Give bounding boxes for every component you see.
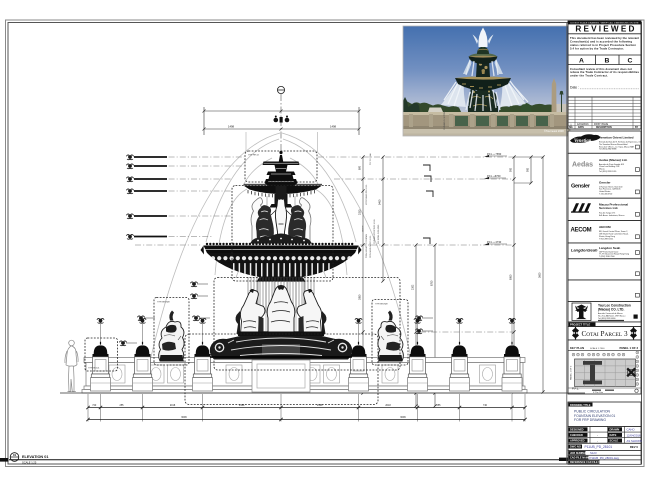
svg-text:SCALE 1:25: SCALE 1:25 [22, 461, 37, 465]
svg-text:C: C [628, 58, 633, 65]
svg-text:SCALE 1:7500: SCALE 1:7500 [590, 347, 605, 350]
svg-text:900: 900 [509, 167, 512, 172]
svg-text:ELEVATION 01: ELEVATION 01 [22, 455, 48, 459]
svg-text:8060: 8060 [509, 274, 512, 280]
svg-text:FOUNTAIN STRUCTURE LEVEL: FOUNTAIN STRUCTURE LEVEL [373, 219, 376, 244]
svg-text:(Macau) CO. LTD.: (Macau) CO. LTD. [598, 308, 624, 312]
svg-text:12/04/2016: 12/04/2016 [577, 124, 589, 126]
svg-text:12/04/2016: 12/04/2016 [627, 433, 641, 437]
svg-text:AECOM: AECOM [571, 228, 592, 234]
svg-text:Consultant(s) and is accorded: Consultant(s) and is accorded the follow… [570, 40, 632, 44]
svg-text:T (852) 2830 2500: T (852) 2830 2500 [599, 256, 615, 258]
svg-text:P.F.L + 4730: P.F.L + 4730 [487, 240, 502, 244]
svg-text:TOP OF FINIAL: TOP OF FINIAL [369, 153, 372, 165]
svg-text:900: 900 [526, 167, 529, 172]
svg-text:BY: BY [635, 127, 639, 129]
svg-text:REVIEWED: REVIEWED [575, 25, 636, 34]
svg-text:Langdon Seah: Langdon Seah [599, 246, 620, 250]
svg-text:DRAWN: DRAWN [610, 428, 620, 432]
svg-text:6096: 6096 [400, 416, 406, 419]
svg-text:Gensler: Gensler [599, 180, 611, 184]
svg-text:CHECKED: CHECKED [570, 433, 583, 437]
svg-text:900 TYP: 900 TYP [363, 225, 365, 232]
svg-text:LangdonSeah: LangdonSeah [571, 248, 598, 253]
svg-text:Gensler: Gensler [571, 183, 591, 189]
svg-text:PANEL 1 OF 3: PANEL 1 OF 3 [570, 365, 573, 380]
svg-text:T 415.433.3700: T 415.433.3700 [599, 194, 612, 196]
svg-text:3080: 3080 [359, 294, 362, 300]
svg-text:COTAI PARCEL 3: COTAI PARCEL 3 [581, 330, 628, 338]
svg-text:2030: 2030 [359, 209, 362, 215]
svg-text:REV 0: REV 0 [630, 445, 639, 449]
svg-text:SCALE: SCALE [610, 439, 619, 443]
svg-text:DRAWING TITLE: DRAWING TITLE [570, 403, 591, 407]
svg-text:-: - [597, 433, 598, 437]
svg-text:A: A [579, 58, 584, 65]
svg-text:1498: 1498 [330, 125, 336, 129]
svg-text:255: 255 [120, 404, 125, 407]
svg-text:T 852 2893 1551: T 852 2893 1551 [599, 238, 613, 240]
svg-text:3600: 3600 [538, 272, 541, 278]
svg-text:6096: 6096 [181, 416, 187, 419]
svg-text:status referred to in Project: status referred to in Project Procedure … [570, 43, 636, 47]
svg-text:under the Trade Contract.: under the Trade Contract. [570, 74, 608, 78]
svg-text:SEE DETAIL DWG 28105: SEE DETAIL DWG 28105 [377, 225, 380, 244]
svg-text:Tel: (853) 2833 1055: Tel: (853) 2833 1055 [599, 171, 616, 173]
svg-text:KEY PLAN: KEY PLAN [570, 346, 584, 350]
svg-text:JOB NUMBER: JOB NUMBER [570, 452, 587, 455]
svg-text:Date :: Date : [570, 86, 579, 90]
svg-text:01: 01 [13, 453, 17, 457]
svg-text:740: 740 [92, 404, 97, 407]
svg-text:AS SHOWN: AS SHOWN [627, 439, 642, 443]
svg-text:P11UB_PD_28001.dwg: P11UB_PD_28001.dwg [590, 456, 620, 460]
svg-text:2018: 2018 [385, 404, 391, 407]
svg-text:Edf. Assoc. Industriais, Macau: Edf. Assoc. Industriais, Macau [599, 214, 624, 217]
svg-text:AECOM: AECOM [599, 225, 611, 229]
svg-text:2438: 2438 [317, 404, 323, 407]
svg-text:5.4 for action by the Trade Co: 5.4 for action by the Trade Contractor. [570, 46, 624, 50]
svg-text:Tel: (853) 2882 8888: Tel: (853) 2882 8888 [599, 149, 616, 151]
svg-text:P.F.L + 7650: P.F.L + 7650 [487, 152, 502, 156]
svg-text:©Tournesol 2008: ©Tournesol 2008 [544, 129, 564, 133]
svg-text:DESCRIPTION: DESCRIPTION [596, 127, 612, 129]
svg-text:UPPER BASIN RIM LEVEL: UPPER BASIN RIM LEVEL [365, 184, 368, 205]
svg-text:TYPE BRONZE: TYPE BRONZE [375, 304, 388, 306]
svg-text:TYPE FRP-03: TYPE FRP-03 [248, 155, 259, 157]
svg-text:DATE: DATE [578, 126, 585, 129]
svg-text:relieve the Trade Contractor o: relieve the Trade Contractor of its resp… [570, 70, 640, 74]
svg-text:P11UB_PD_28101: P11UB_PD_28101 [585, 445, 613, 449]
svg-text:APPROVED: APPROVED [570, 439, 585, 443]
svg-text:740: 740 [483, 404, 488, 407]
svg-text:2438: 2438 [239, 404, 245, 407]
svg-text:2302: 2302 [411, 284, 414, 290]
svg-text:Tel: (853) 2870 0800: Tel: (853) 2870 0800 [598, 318, 615, 320]
svg-text:TYPE BRZ-01: TYPE BRZ-01 [88, 368, 99, 370]
svg-text:NO.: NO. [569, 127, 573, 129]
svg-text:DWG NO: DWG NO [570, 445, 581, 449]
svg-text:DESIGNED: DESIGNED [570, 428, 584, 432]
svg-text:Aedas (Macau) Ltd.: Aedas (Macau) Ltd. [599, 158, 628, 162]
svg-text:DATE: DATE [610, 433, 617, 437]
svg-text:Venetian Orient Limited: Venetian Orient Limited [599, 136, 634, 140]
svg-text:△: △ [570, 123, 572, 126]
svg-text:PANEL 1 OF 3: PANEL 1 OF 3 [619, 346, 638, 350]
svg-text:P.F.L +6760: P.F.L +6760 [487, 174, 501, 178]
svg-text:Aedas: Aedas [572, 161, 593, 168]
svg-text:REFERENCE CAD FILE NAME: REFERENCE CAD FILE NAME [570, 461, 606, 464]
svg-text:FIRST ISSUE: FIRST ISSUE [594, 124, 609, 126]
svg-text:2018: 2018 [170, 404, 176, 407]
svg-text:Venetian: Venetian [574, 139, 592, 144]
svg-text:FOR FRP DRAWING: FOR FRP DRAWING [574, 418, 606, 422]
svg-text:1498: 1498 [228, 125, 234, 129]
svg-text:PROJECT TITLE: PROJECT TITLE [570, 323, 590, 327]
svg-text:FROM BASIN WATER LEVEL: FROM BASIN WATER LEVEL [369, 235, 372, 258]
svg-text:TOTAL HEIGHT OF FOUNTAIN: TOTAL HEIGHT OF FOUNTAIN [365, 233, 368, 258]
svg-text:CAD FILE NAME: CAD FILE NAME [570, 457, 590, 460]
svg-text:5460: 5460 [379, 199, 382, 205]
svg-text:890: 890 [359, 165, 362, 170]
svg-text:Consultant review of this docu: Consultant review of this document does … [570, 67, 632, 71]
svg-text:Services Ltd.: Services Ltd. [599, 206, 618, 210]
svg-text:FOUNTAIN CL SETTING OUT: FOUNTAIN CL SETTING OUT [443, 107, 446, 130]
svg-text:This document has been reviewe: This document has been reviewed by the r… [570, 36, 639, 40]
svg-text:8750: 8750 [430, 280, 433, 286]
svg-text:255: 255 [437, 404, 442, 407]
svg-text:P.F.L.: P.F.L. [572, 387, 579, 391]
svg-text:S123: S123 [590, 451, 597, 455]
svg-text:0 25m 50m: 0 25m 50m [593, 392, 603, 394]
svg-text:TYPE BRONZE: TYPE BRONZE [157, 302, 170, 304]
svg-text:-: - [597, 439, 598, 443]
svg-text:B: B [605, 58, 610, 65]
svg-text:CAHO: CAHO [627, 428, 636, 432]
